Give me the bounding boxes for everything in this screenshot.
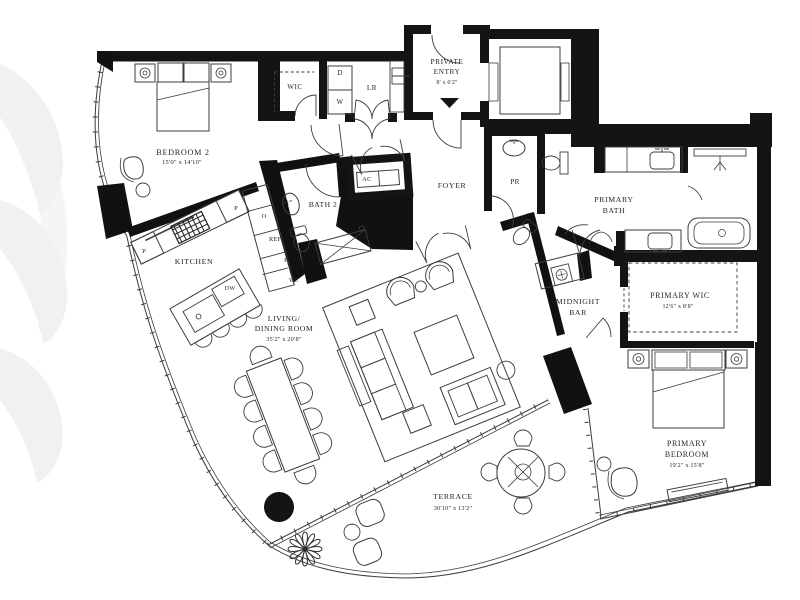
- svg-text:AC: AC: [362, 176, 372, 183]
- svg-text:PRIVATE: PRIVATE: [431, 57, 464, 66]
- svg-text:F: F: [284, 257, 288, 264]
- svg-text:BEDROOM 2: BEDROOM 2: [156, 148, 209, 157]
- svg-text:W: W: [337, 98, 344, 106]
- svg-text:PRIMARY: PRIMARY: [594, 195, 633, 204]
- svg-text:WC: WC: [289, 278, 299, 284]
- svg-text:15′0″ x 14′10″: 15′0″ x 14′10″: [162, 159, 202, 166]
- svg-text:FOYER: FOYER: [438, 181, 467, 190]
- svg-text:BATH 2: BATH 2: [309, 200, 338, 209]
- svg-text:KITCHEN: KITCHEN: [175, 257, 213, 266]
- svg-text:LR: LR: [367, 84, 377, 92]
- svg-text:PRIMARY: PRIMARY: [667, 439, 707, 448]
- svg-text:P: P: [234, 205, 238, 212]
- svg-text:LIVING/: LIVING/: [268, 314, 301, 323]
- svg-text:8′ x 6′2″: 8′ x 6′2″: [436, 80, 458, 86]
- svg-text:35′2″ x 20′8″: 35′2″ x 20′8″: [266, 336, 301, 343]
- svg-text:19′2″ x 15′8″: 19′2″ x 15′8″: [669, 462, 704, 469]
- svg-text:ENTRY: ENTRY: [434, 67, 461, 76]
- svg-text:DW: DW: [225, 286, 236, 292]
- svg-text:BEDROOM: BEDROOM: [665, 450, 709, 459]
- svg-text:PRIMARY WIC: PRIMARY WIC: [650, 291, 710, 300]
- svg-text:REF: REF: [269, 236, 281, 243]
- svg-text:TERRACE: TERRACE: [433, 492, 473, 501]
- svg-text:12′6″ x 8′8″: 12′6″ x 8′8″: [662, 304, 693, 310]
- svg-text:BAR: BAR: [569, 308, 587, 317]
- svg-text:PR: PR: [510, 178, 520, 186]
- svg-text:30′10″ x 13′2″: 30′10″ x 13′2″: [434, 505, 473, 512]
- svg-text:D: D: [337, 69, 342, 77]
- svg-text:BATH: BATH: [603, 206, 626, 215]
- svg-text:DINING ROOM: DINING ROOM: [255, 324, 314, 333]
- svg-text:WIC: WIC: [287, 83, 302, 91]
- svg-text:P: P: [142, 248, 146, 255]
- svg-text:MIDNIGHT: MIDNIGHT: [556, 297, 600, 306]
- svg-text:O: O: [262, 213, 267, 220]
